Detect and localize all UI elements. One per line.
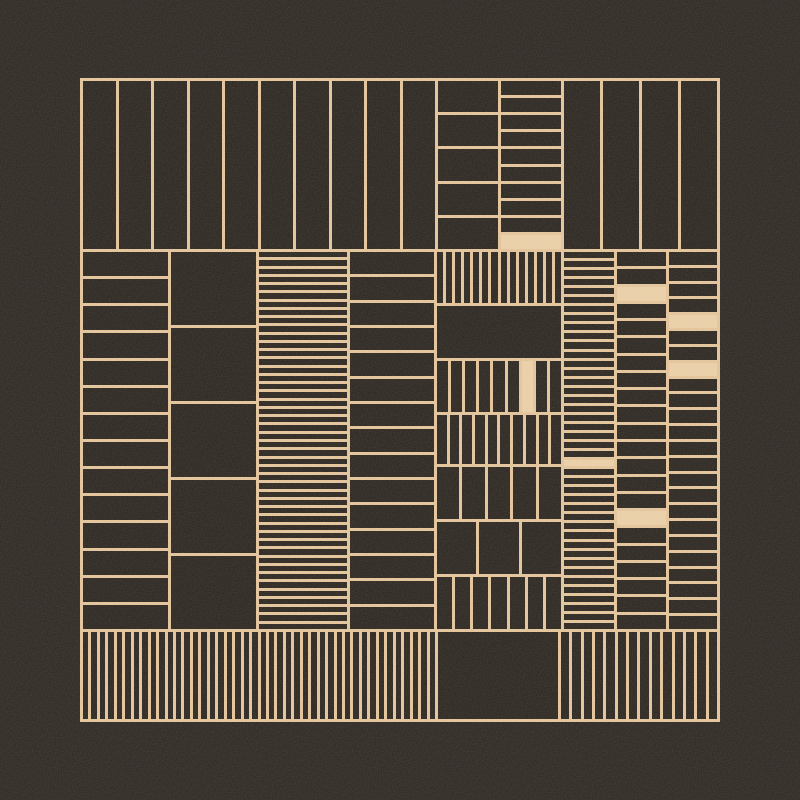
cell: [350, 328, 434, 350]
cell: [83, 388, 168, 412]
cell: [437, 577, 452, 629]
cell: [83, 306, 168, 330]
panel-bottom-solid-block: [438, 632, 558, 719]
cell: [564, 478, 614, 484]
cell: [259, 442, 347, 447]
cell-filled: [522, 361, 533, 412]
cell: [350, 379, 434, 401]
cell: [510, 577, 525, 629]
cell: [201, 632, 206, 719]
cell: [83, 361, 168, 385]
cell: [564, 623, 614, 629]
cell: [564, 542, 614, 548]
cell: [259, 434, 347, 439]
cell: [501, 201, 561, 215]
cell: [328, 632, 333, 719]
cell: [332, 81, 365, 249]
cell: [493, 361, 504, 412]
cell: [83, 333, 168, 357]
cell: [501, 132, 561, 146]
cell: [259, 260, 347, 265]
cell: [564, 270, 614, 276]
cell: [640, 632, 648, 719]
cell: [91, 632, 96, 719]
cell: [536, 361, 547, 412]
panel-right-rows-mid: [617, 252, 666, 629]
cell: [176, 632, 181, 719]
cell: [501, 218, 561, 232]
cell: [259, 475, 347, 480]
cell: [227, 632, 232, 719]
cell: [564, 523, 614, 529]
cell: [83, 415, 168, 439]
cell: [528, 252, 534, 303]
cell: [564, 433, 614, 439]
cell: [83, 523, 168, 547]
cell: [261, 632, 266, 719]
cell: [437, 467, 459, 519]
panel-mid-big-blocks: [171, 252, 256, 629]
cell: [345, 632, 350, 719]
cell: [303, 632, 308, 719]
cell: [353, 632, 358, 719]
panel-right-rows-outer: [669, 252, 717, 629]
cell: [617, 304, 666, 318]
cell: [551, 415, 561, 464]
cell: [669, 489, 717, 502]
cell: [259, 467, 347, 472]
cell: [259, 310, 347, 315]
cell: [259, 302, 347, 307]
cell: [564, 496, 614, 502]
page-background: { "artwork": { "colors": { "background":…: [0, 0, 800, 800]
cell: [669, 268, 717, 281]
cell: [697, 632, 705, 719]
cell: [259, 591, 347, 596]
cell: [564, 342, 614, 348]
cell: [564, 370, 614, 376]
cell: [83, 442, 168, 466]
cell: [564, 451, 614, 457]
cell: [259, 582, 347, 587]
cell: [686, 632, 694, 719]
cell: [462, 415, 472, 464]
cell: [617, 477, 666, 491]
cell: [350, 252, 434, 274]
cell: [350, 277, 434, 299]
cell: [83, 279, 168, 303]
cell: [168, 632, 173, 719]
cell-filled: [617, 511, 666, 525]
cell: [617, 442, 666, 456]
cell: [513, 467, 535, 519]
cell: [669, 584, 717, 597]
cell: [190, 81, 223, 249]
cell: [513, 415, 523, 464]
cell: [83, 605, 168, 629]
cell: [564, 252, 614, 258]
cell: [244, 632, 249, 719]
cell: [142, 632, 147, 719]
cell: [617, 459, 666, 473]
cell: [450, 415, 460, 464]
cell: [277, 632, 282, 719]
cell-filled: [669, 315, 717, 328]
cell-filled: [617, 287, 666, 301]
cell: [522, 522, 561, 574]
cell: [491, 577, 506, 629]
cell: [603, 81, 639, 249]
cell: [617, 356, 666, 370]
cell: [437, 252, 443, 303]
cell: [539, 415, 549, 464]
canvas-background: [0, 0, 800, 800]
cell-filled: [564, 460, 614, 466]
panel-mid-dense-hstripes: [259, 252, 347, 629]
panel-center-bars-widest: [437, 522, 561, 574]
cell: [225, 81, 258, 249]
cell: [259, 401, 347, 406]
cell: [83, 551, 168, 575]
cell: [564, 333, 614, 339]
cell: [564, 415, 614, 421]
panel-mid-rows-medium: [350, 252, 434, 629]
cell: [501, 149, 561, 163]
cell: [564, 352, 614, 358]
cell: [564, 442, 614, 448]
panel-center-bars-c: [437, 577, 561, 629]
cell: [437, 522, 476, 574]
cell: [184, 632, 189, 719]
cell: [296, 81, 329, 249]
cell: [675, 632, 683, 719]
cell: [430, 632, 435, 719]
cell: [261, 81, 294, 249]
cell: [669, 379, 717, 392]
panel-top-right-stripes: [564, 81, 717, 249]
cell: [464, 252, 470, 303]
cell: [564, 532, 614, 538]
cell: [669, 347, 717, 360]
cell: [259, 335, 347, 340]
cell: [595, 632, 603, 719]
cell: [83, 496, 168, 520]
cell: [108, 632, 113, 719]
cell: [259, 384, 347, 389]
cell: [252, 632, 257, 719]
cell: [83, 632, 88, 719]
cell: [259, 599, 347, 604]
cell: [652, 632, 660, 719]
cell: [446, 252, 452, 303]
cell: [501, 81, 561, 95]
cell: [473, 252, 479, 303]
cell: [119, 81, 152, 249]
cell: [451, 361, 462, 412]
cell: [526, 415, 536, 464]
cell: [83, 578, 168, 602]
cell: [669, 426, 717, 439]
cell: [259, 492, 347, 497]
cell: [259, 500, 347, 505]
cell: [488, 415, 498, 464]
cell: [501, 167, 561, 181]
cell: [561, 632, 569, 719]
cell: [564, 505, 614, 511]
cell: [437, 361, 448, 412]
cell: [465, 361, 476, 412]
cell: [617, 407, 666, 421]
cell: [669, 284, 717, 297]
cell: [669, 474, 717, 487]
cell: [259, 624, 347, 629]
cell: [387, 632, 392, 719]
cell: [83, 252, 168, 276]
cell: [259, 533, 347, 538]
cell: [564, 514, 614, 520]
panel-center-bars-wide: [437, 467, 561, 519]
cell: [193, 632, 198, 719]
cell: [259, 450, 347, 455]
cell: [259, 318, 347, 323]
cell: [259, 351, 347, 356]
cell: [617, 252, 666, 266]
cell: [681, 81, 717, 249]
cell: [669, 569, 717, 582]
cell: [629, 632, 637, 719]
panel-top-wide-stripes: [83, 81, 435, 249]
panel-bottom-right-stripes: [561, 632, 717, 719]
cell: [171, 556, 256, 629]
cell: [617, 615, 666, 629]
cell: [134, 632, 139, 719]
panel-center-vstripes-dense: [437, 252, 561, 303]
cell: [546, 252, 552, 303]
cell: [350, 429, 434, 451]
cell: [259, 252, 347, 257]
panel-center-bars-a: [437, 361, 561, 412]
cell: [669, 537, 717, 550]
cell: [259, 409, 347, 414]
cell: [350, 556, 434, 578]
cell: [564, 569, 614, 575]
cell: [617, 269, 666, 283]
cell: [564, 388, 614, 394]
cell: [350, 531, 434, 553]
cell: [537, 252, 543, 303]
panel-top-rows-medium: [438, 81, 498, 249]
cell: [564, 261, 614, 267]
cell: [151, 632, 156, 719]
cell: [259, 293, 347, 298]
cell: [259, 285, 347, 290]
cell: [379, 632, 384, 719]
cell: [564, 587, 614, 593]
cell: [501, 98, 561, 112]
panel-right-ladder-dense: [564, 252, 614, 629]
cell: [100, 632, 105, 719]
cell: [83, 81, 116, 249]
panel-bottom-dense-stripes: [83, 632, 435, 719]
cell: [235, 632, 240, 719]
cell: [259, 326, 347, 331]
cell: [350, 353, 434, 375]
cell: [510, 252, 516, 303]
cell: [519, 252, 525, 303]
cell: [669, 394, 717, 407]
cell: [669, 331, 717, 344]
cell: [350, 480, 434, 502]
cell: [413, 632, 418, 719]
cell: [555, 252, 561, 303]
cell: [546, 577, 561, 629]
cell: [564, 379, 614, 385]
cell: [473, 577, 488, 629]
cell: [421, 632, 426, 719]
cell: [617, 373, 666, 387]
cell: [479, 361, 490, 412]
cell: [501, 184, 561, 198]
cell: [350, 455, 434, 477]
cell: [564, 288, 614, 294]
cell: [437, 306, 561, 358]
cell: [669, 616, 717, 629]
cell: [259, 425, 347, 430]
cell: [117, 632, 122, 719]
cell: [171, 480, 256, 553]
cell-filled: [501, 235, 561, 249]
cell: [83, 469, 168, 493]
cell: [669, 505, 717, 518]
cell: [438, 81, 498, 112]
cell: [259, 607, 347, 612]
cell: [438, 115, 498, 146]
cell: [259, 417, 347, 422]
cell: [709, 632, 717, 719]
cell: [259, 277, 347, 282]
cell: [259, 269, 347, 274]
cell: [617, 390, 666, 404]
cell: [550, 361, 561, 412]
cell: [437, 415, 447, 464]
cell: [367, 81, 400, 249]
cell: [564, 315, 614, 321]
cell: [455, 577, 470, 629]
cell: [617, 425, 666, 439]
art-frame: [80, 78, 720, 722]
cell: [584, 632, 592, 719]
cell: [618, 632, 626, 719]
cell: [669, 553, 717, 566]
cell: [564, 560, 614, 566]
cell: [617, 597, 666, 611]
cell: [259, 459, 347, 464]
cell: [311, 632, 316, 719]
cell: [259, 508, 347, 513]
cell: [259, 541, 347, 546]
cell: [508, 361, 519, 412]
cell: [572, 632, 580, 719]
cell: [488, 467, 510, 519]
cell: [564, 361, 614, 367]
cell: [154, 81, 187, 249]
cell: [259, 483, 347, 488]
cell: [404, 632, 409, 719]
cell: [396, 632, 401, 719]
cell-filled: [669, 363, 717, 376]
cell: [462, 467, 484, 519]
cell: [564, 551, 614, 557]
cell: [259, 558, 347, 563]
cell: [482, 252, 488, 303]
cell: [171, 404, 256, 477]
cell: [669, 600, 717, 613]
cell: [362, 632, 367, 719]
cell: [259, 516, 347, 521]
cell: [564, 469, 614, 475]
cell: [564, 324, 614, 330]
cell: [564, 406, 614, 412]
cell: [370, 632, 375, 719]
cell: [617, 580, 666, 594]
cell: [539, 467, 561, 519]
cell: [500, 415, 510, 464]
cell: [669, 442, 717, 455]
cell: [259, 343, 347, 348]
cell: [669, 410, 717, 423]
cell: [564, 81, 600, 249]
cell: [663, 632, 671, 719]
cell: [606, 632, 614, 719]
cell: [564, 487, 614, 493]
cell: [564, 279, 614, 285]
cell: [642, 81, 678, 249]
cell: [218, 632, 223, 719]
cell: [617, 494, 666, 508]
cell: [669, 521, 717, 534]
cell: [479, 522, 518, 574]
cell: [491, 252, 497, 303]
panel-top-rows-dense: [501, 81, 561, 249]
cell: [669, 252, 717, 265]
cell: [564, 397, 614, 403]
cell: [259, 359, 347, 364]
cell: [350, 505, 434, 527]
cell: [259, 566, 347, 571]
cell: [617, 528, 666, 542]
panel-mid-left-rows: [83, 252, 168, 629]
cell: [350, 607, 434, 629]
cell: [669, 299, 717, 312]
cell: [564, 605, 614, 611]
cell: [501, 115, 561, 129]
cell: [125, 632, 130, 719]
cell: [564, 614, 614, 620]
cell: [501, 252, 507, 303]
cell: [337, 632, 342, 719]
cell: [171, 328, 256, 401]
cell: [403, 81, 436, 249]
cell: [455, 252, 461, 303]
cell: [475, 415, 485, 464]
cell: [294, 632, 299, 719]
cell: [438, 218, 498, 249]
cell: [617, 321, 666, 335]
cell: [617, 546, 666, 560]
cell: [210, 632, 215, 719]
cell: [320, 632, 325, 719]
cell: [259, 368, 347, 373]
